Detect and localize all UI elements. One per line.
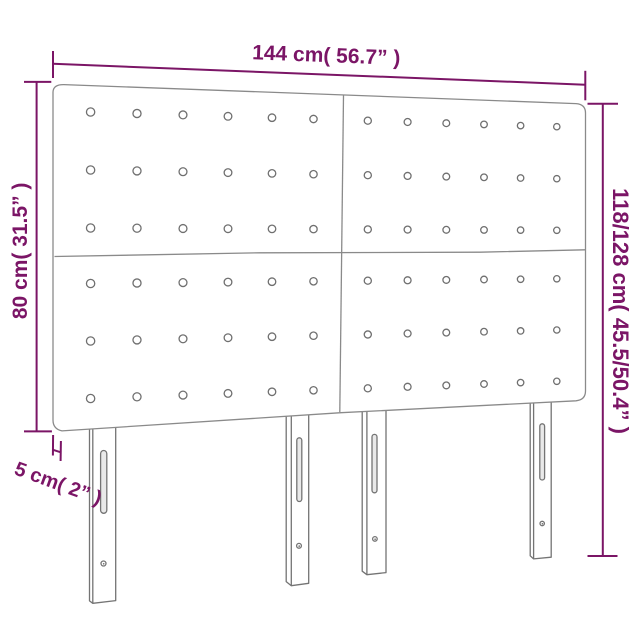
svg-text:118/128 cm( 45.5/50.4” ): 118/128 cm( 45.5/50.4” ) — [608, 188, 633, 434]
svg-text:80 cm( 31.5” ): 80 cm( 31.5” ) — [9, 183, 32, 320]
